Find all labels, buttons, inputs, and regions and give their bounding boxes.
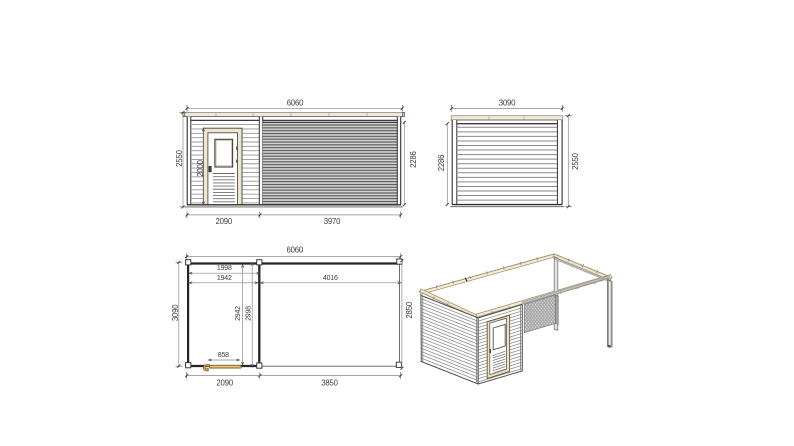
svg-text:2090: 2090: [216, 217, 233, 226]
svg-text:3850: 3850: [321, 379, 338, 388]
svg-text:2942: 2942: [235, 306, 242, 321]
svg-text:1998: 1998: [217, 265, 232, 272]
svg-text:3090: 3090: [171, 304, 180, 321]
svg-text:4016: 4016: [323, 275, 338, 282]
svg-text:2998: 2998: [245, 306, 252, 321]
svg-text:2550: 2550: [571, 152, 580, 169]
svg-text:3090: 3090: [499, 99, 516, 108]
svg-text:2000: 2000: [196, 159, 205, 176]
svg-text:6060: 6060: [287, 99, 304, 108]
svg-text:1942: 1942: [217, 275, 232, 282]
svg-text:2090: 2090: [216, 379, 233, 388]
svg-text:2850: 2850: [405, 301, 414, 318]
svg-text:858: 858: [218, 352, 229, 359]
svg-text:6060: 6060: [287, 245, 304, 254]
svg-text:3970: 3970: [324, 217, 341, 226]
svg-text:2286: 2286: [437, 155, 446, 172]
svg-text:2550: 2550: [175, 149, 184, 166]
svg-text:2286: 2286: [409, 151, 418, 168]
